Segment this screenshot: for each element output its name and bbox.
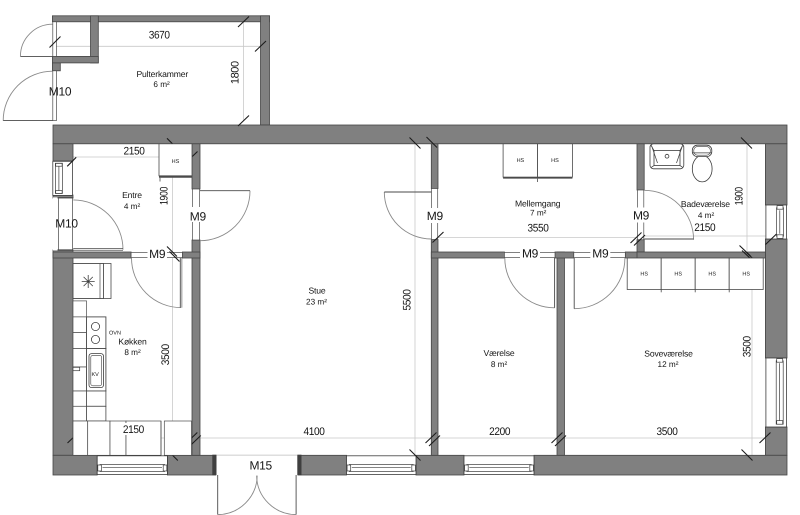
svg-text:3500: 3500	[160, 344, 172, 365]
svg-text:4100: 4100	[304, 426, 325, 438]
svg-text:M9: M9	[633, 209, 650, 223]
svg-text:Soveværelse: Soveværelse	[644, 349, 693, 359]
svg-text:M9: M9	[190, 209, 207, 223]
svg-text:7 m²: 7 m²	[530, 209, 547, 218]
svg-text:2150: 2150	[124, 146, 145, 158]
svg-text:8 m²: 8 m²	[124, 348, 141, 357]
svg-text:1800: 1800	[230, 61, 242, 84]
svg-text:HS: HS	[172, 159, 180, 165]
svg-text:M10: M10	[55, 217, 78, 231]
svg-text:1900: 1900	[733, 187, 745, 205]
svg-text:4 m²: 4 m²	[124, 202, 141, 211]
svg-text:HS: HS	[551, 158, 559, 164]
svg-text:4 m²: 4 m²	[698, 211, 715, 220]
svg-text:3550: 3550	[528, 223, 549, 235]
svg-text:6 m²: 6 m²	[153, 80, 170, 89]
svg-text:Entre: Entre	[122, 190, 142, 200]
svg-text:12 m²: 12 m²	[658, 360, 679, 369]
svg-text:2150: 2150	[123, 424, 144, 436]
svg-text:5500: 5500	[401, 289, 413, 310]
svg-text:3500: 3500	[741, 336, 753, 357]
svg-text:Pulterkammer: Pulterkammer	[136, 69, 188, 79]
svg-text:Værelse: Værelse	[484, 348, 515, 358]
svg-text:HS: HS	[517, 158, 525, 164]
svg-text:23 m²: 23 m²	[306, 298, 327, 307]
svg-text:M9: M9	[427, 209, 444, 223]
svg-text:M15: M15	[249, 459, 272, 473]
svg-text:Køkken: Køkken	[118, 337, 147, 347]
svg-text:HS: HS	[708, 272, 716, 278]
svg-text:M9: M9	[592, 247, 609, 261]
svg-text:HS: HS	[742, 272, 750, 278]
svg-text:OVN: OVN	[109, 331, 121, 337]
svg-text:Badeværelse: Badeværelse	[681, 199, 730, 209]
svg-text:KV: KV	[92, 372, 100, 378]
svg-text:8 m²: 8 m²	[491, 360, 508, 369]
svg-text:M9: M9	[149, 247, 166, 261]
svg-text:2150: 2150	[694, 222, 715, 234]
svg-text:HS: HS	[640, 272, 648, 278]
svg-text:M10: M10	[49, 85, 72, 99]
svg-text:HS: HS	[674, 272, 682, 278]
svg-text:3670: 3670	[149, 29, 170, 41]
svg-text:Mellemgang: Mellemgang	[515, 199, 561, 209]
svg-text:Stue: Stue	[308, 286, 325, 296]
svg-text:M9: M9	[522, 247, 539, 261]
svg-text:1900: 1900	[159, 187, 171, 205]
svg-text:2200: 2200	[489, 426, 510, 438]
svg-text:3500: 3500	[657, 426, 678, 438]
